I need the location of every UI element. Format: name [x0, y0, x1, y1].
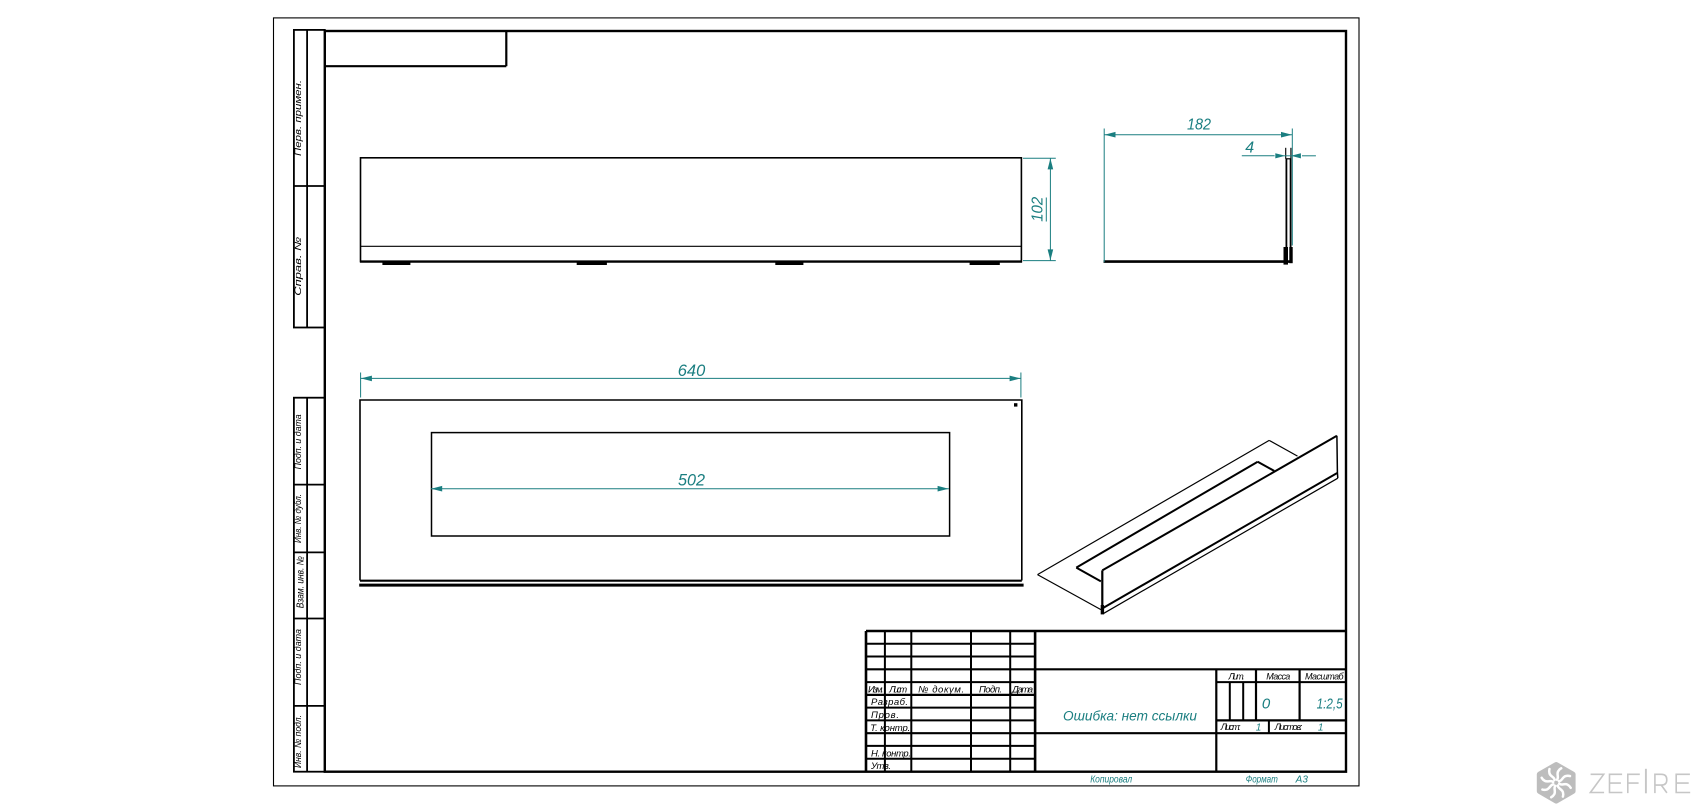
svg-text:Пров.: Пров. — [871, 710, 899, 721]
svg-text:№ докум.: № докум. — [918, 684, 964, 695]
svg-text:102: 102 — [1030, 197, 1047, 222]
svg-text:Формат: Формат — [1246, 774, 1278, 785]
svg-text:Изм.: Изм. — [868, 684, 884, 695]
svg-text:Т. контр.: Т. контр. — [870, 723, 910, 734]
svg-text:Н. контр.: Н. контр. — [871, 748, 911, 759]
svg-text:А3: А3 — [1295, 774, 1309, 785]
svg-text:Подп. и дата: Подп. и дата — [293, 629, 303, 685]
svg-text:502: 502 — [678, 471, 705, 489]
svg-text:Перв. примен.: Перв. примен. — [293, 80, 303, 156]
svg-text:1: 1 — [1318, 722, 1324, 733]
svg-text:Подп.: Подп. — [979, 684, 1002, 695]
svg-text:640: 640 — [678, 362, 706, 380]
svg-text:Ошибка: нет ссылки: Ошибка: нет ссылки — [1063, 708, 1197, 724]
svg-text:0: 0 — [1262, 696, 1271, 713]
svg-text:Разраб.: Разраб. — [871, 697, 908, 708]
svg-text:Листов:: Листов: — [1274, 722, 1303, 732]
svg-text:Подп. и дата: Подп. и дата — [293, 414, 303, 469]
svg-text:Взам. инв. №: Взам. инв. № — [296, 556, 307, 608]
svg-text:182: 182 — [1187, 116, 1211, 133]
svg-text:Справ. №: Справ. № — [293, 237, 303, 296]
svg-text:4: 4 — [1245, 139, 1254, 156]
svg-text:1: 1 — [1256, 722, 1262, 733]
svg-text:Масса: Масса — [1266, 671, 1290, 681]
svg-text:Инв. № подл.: Инв. № подл. — [293, 715, 303, 768]
svg-text:Утв.: Утв. — [870, 761, 891, 772]
svg-text:Лист:: Лист: — [1220, 722, 1241, 732]
svg-text:Инв. № дубл.: Инв. № дубл. — [293, 494, 303, 543]
svg-text:Дата: Дата — [1011, 684, 1033, 695]
svg-text:Копировал: Копировал — [1090, 774, 1132, 785]
svg-text:Масштаб: Масштаб — [1305, 671, 1344, 681]
svg-text:1:2,5: 1:2,5 — [1317, 696, 1344, 713]
svg-text:Лит.: Лит. — [1228, 671, 1245, 681]
svg-text:Лист: Лист — [888, 684, 907, 695]
